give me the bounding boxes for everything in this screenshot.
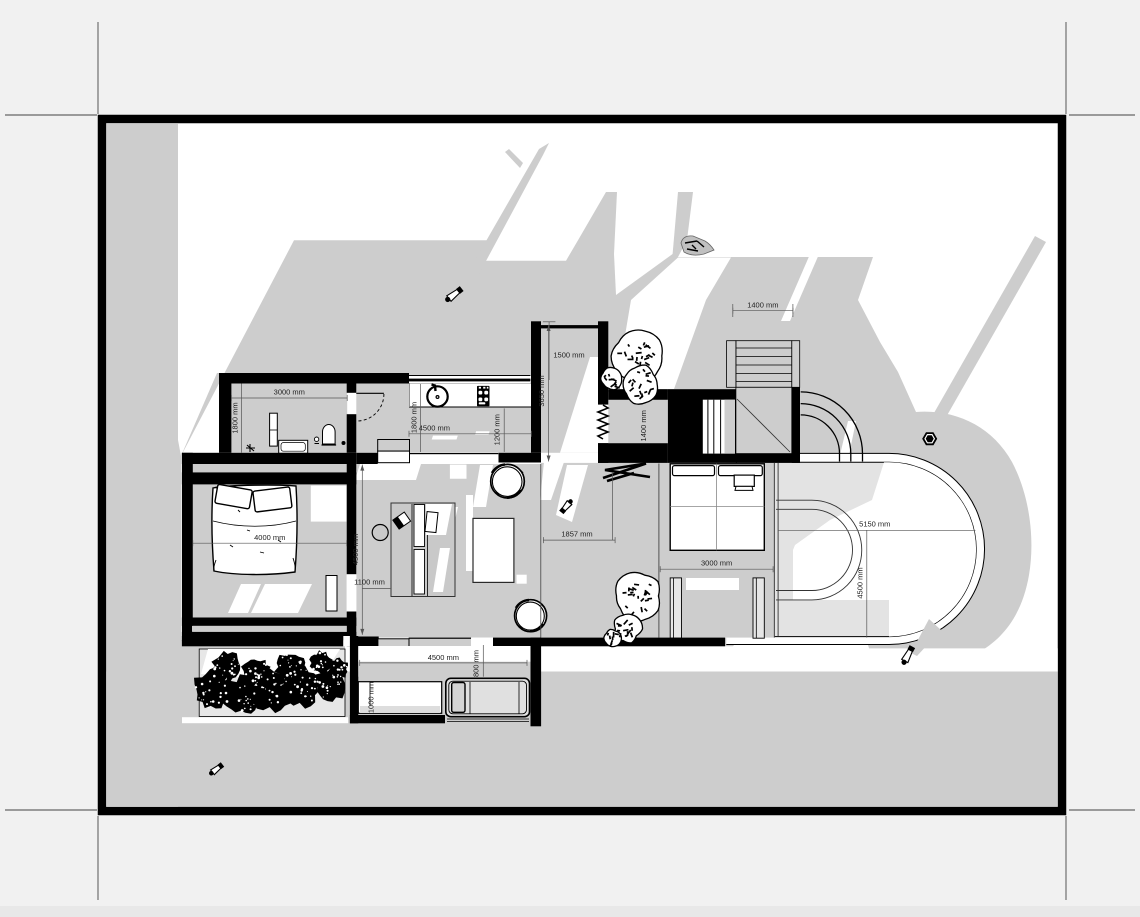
svg-text:3650 mm: 3650 mm [537, 375, 546, 406]
svg-text:4000 mm: 4000 mm [254, 533, 285, 542]
svg-text:3000 mm: 3000 mm [274, 388, 305, 397]
svg-text:1000 mm: 1000 mm [367, 682, 376, 713]
svg-text:3000 mm: 3000 mm [701, 559, 732, 568]
svg-text:1500 mm: 1500 mm [553, 351, 584, 360]
svg-text:1800 mm: 1800 mm [231, 402, 240, 433]
svg-text:1857 mm: 1857 mm [561, 530, 592, 539]
svg-text:1400 mm: 1400 mm [747, 301, 778, 310]
svg-text:4500 mm: 4500 mm [419, 424, 450, 433]
svg-text:4500 mm: 4500 mm [428, 653, 459, 662]
svg-text:1100 mm: 1100 mm [354, 578, 385, 587]
svg-text:800 mm: 800 mm [472, 650, 481, 677]
svg-text:4500 mm: 4500 mm [856, 567, 865, 598]
svg-text:1200 mm: 1200 mm [493, 414, 502, 445]
svg-text:1400 mm: 1400 mm [639, 410, 648, 441]
svg-text:1800 mm: 1800 mm [409, 402, 418, 433]
svg-text:4500 mm: 4500 mm [351, 534, 360, 565]
svg-text:5150 mm: 5150 mm [859, 520, 890, 529]
